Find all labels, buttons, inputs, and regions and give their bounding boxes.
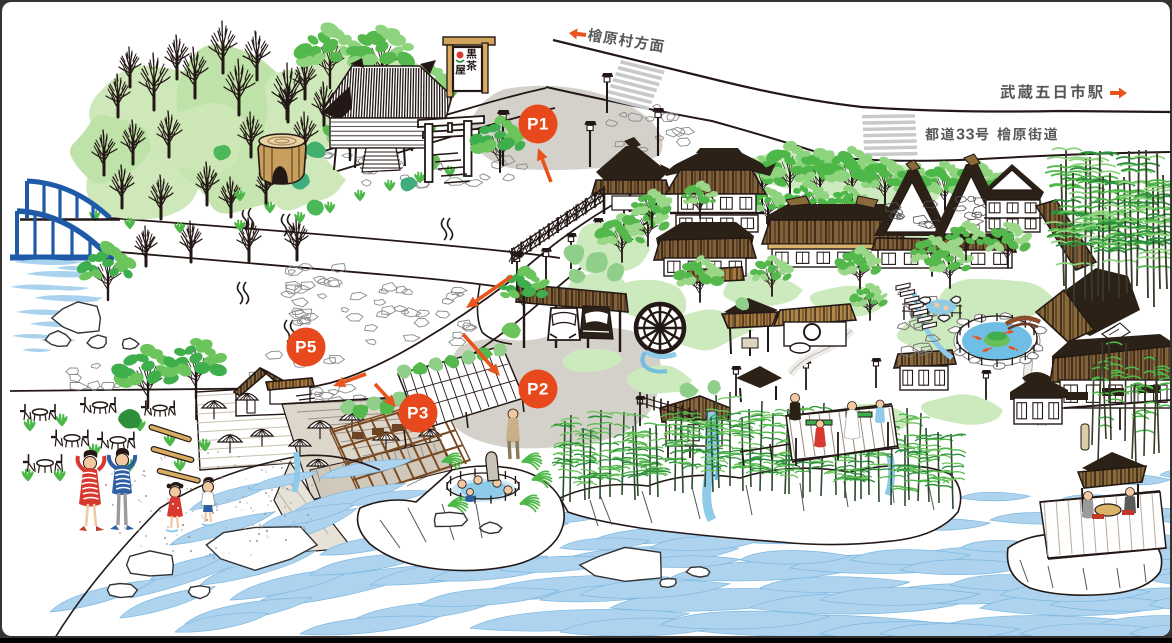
svg-text:P1: P1 [527, 115, 549, 134]
svg-text:3: 3 [956, 125, 965, 143]
svg-text:3: 3 [966, 125, 975, 143]
svg-text:P5: P5 [295, 338, 317, 357]
svg-text:P3: P3 [407, 404, 429, 423]
svg-text:P2: P2 [527, 380, 549, 399]
